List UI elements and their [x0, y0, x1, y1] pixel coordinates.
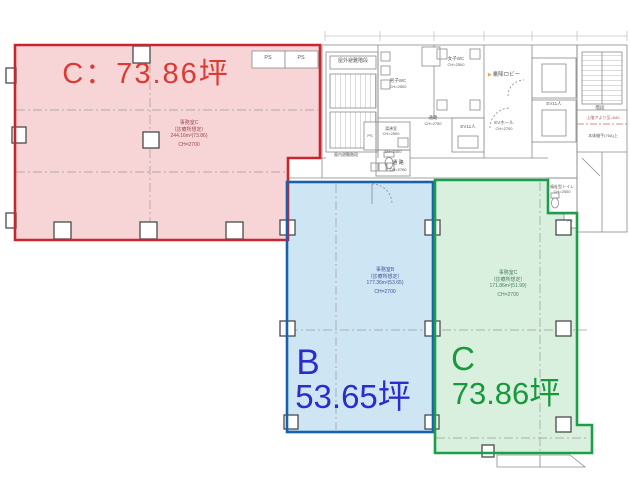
corridor-upper-label: 通路 CH=2750 — [424, 115, 441, 126]
ps-box-2-label: PS — [297, 55, 304, 62]
floor-plan: C：73.86坪 B 53.65坪 C 73.86坪 事務室C （診療所想定） … — [0, 0, 630, 480]
indoor-stair-label: 屋内避難階段 — [334, 152, 358, 157]
kitchenette-ch: CH=2500 — [382, 131, 399, 136]
green-room-annotation: 事務室C （診療所想定） 171.86m²(51.99) CH=2700 — [490, 270, 527, 298]
green-room-area: 171.86m²(51.99) — [490, 283, 527, 290]
small-wc-ch-label: CH=2400 — [384, 149, 401, 154]
outdoor-stair-label: 屋外避難階段 — [338, 58, 368, 65]
mens-wc-ch: CH=2500 — [389, 84, 406, 89]
ps-left-label: PS — [367, 133, 372, 138]
corridor-upper-ch: CH=2750 — [424, 121, 441, 126]
ev-hall-name: EVホール — [494, 120, 514, 126]
accessible-wc-label: 福祉型トイレ CH=2500 — [550, 184, 574, 194]
mens-wc-label: 男子WC CH=2500 — [389, 78, 406, 89]
stair-flight-upper — [330, 74, 376, 108]
ps-box-1-label: PS — [264, 55, 271, 62]
ev-hall-label: EVホール CH=2700 — [494, 120, 514, 131]
corridor-main-ch: CH=2700 — [389, 167, 406, 172]
blue-room-ch: CH=2700 — [367, 289, 404, 296]
elevator-lower-label: EV11人 — [546, 101, 561, 107]
ev-hall-ch: CH=2700 — [494, 126, 514, 131]
mens-wc-name: 男子WC — [389, 78, 406, 84]
lobby-label: ▶乗降ロビー — [488, 72, 520, 79]
zone-green-area: 73.86坪 — [452, 374, 561, 414]
accessible-toilet-fixture — [552, 198, 559, 208]
lobby-direction-icon: ▶ — [488, 72, 492, 78]
lobby-name: 乗降ロビー — [493, 72, 521, 78]
womens-wc-name: 女子WC — [447, 56, 464, 62]
red-room-area: 244.16m²(73.86) — [171, 133, 208, 140]
blue-room-annotation: 事務室B （診療所想定） 177.36m²(53.65) CH=2700 — [367, 267, 404, 295]
stair-note-lower: 本体継手(75A)上 — [588, 133, 618, 138]
blue-room-area: 177.36m²(53.65) — [367, 280, 404, 287]
zone-blue-area: 53.65坪 — [295, 376, 411, 419]
corridor-main-label: 通 路 CH=2700 — [389, 160, 406, 172]
ps-small-label: PS — [567, 218, 572, 223]
red-room-annotation: 事務室C （診療所想定） 244.16m²(73.86) CH=2700 — [171, 120, 208, 148]
accessible-wc-ch: CH=2500 — [550, 189, 574, 194]
red-room-ch: CH=2700 — [171, 142, 208, 149]
elevator-left-label: EV11人 — [460, 124, 475, 130]
kitchenette-label: 湯沸室 CH=2500 — [382, 126, 399, 136]
entrance-canopy — [497, 455, 585, 467]
right-stair-label: 階段 — [596, 105, 605, 111]
green-room-ch: CH=2700 — [490, 292, 527, 299]
zone-red-label: C：73.86坪 — [62, 56, 230, 94]
womens-wc-label: 女子WC CH=2500 — [447, 56, 464, 67]
stair-note-upper: 上階アより至=540 — [587, 115, 620, 120]
womens-wc-ch: CH=2500 — [447, 62, 464, 67]
